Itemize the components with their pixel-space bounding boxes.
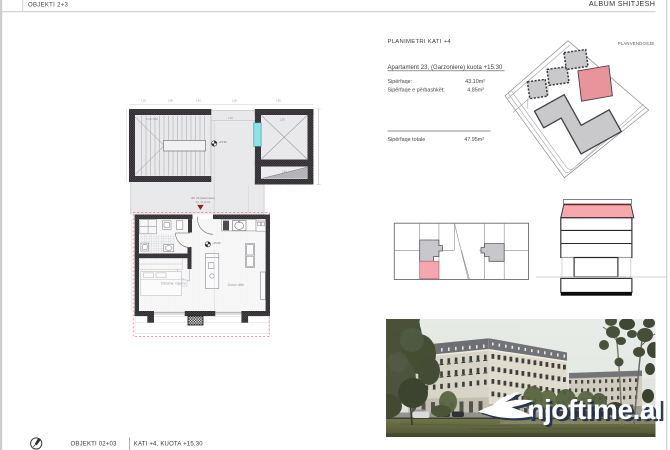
svg-text:AP. 23 (Garzoniere): AP. 23 (Garzoniere) — [191, 196, 215, 200]
svg-text:1.40: 1.40 — [228, 117, 233, 120]
svg-text:2.30: 2.30 — [232, 100, 237, 103]
svg-text:+15.30: +15.30 — [219, 140, 228, 144]
svg-text:17x17,6/28: 17x17,6/28 — [146, 118, 159, 121]
svg-text:47.95m²: 47.95m² — [464, 137, 484, 143]
svg-text:KATI +4, KUOTA +15.30: KATI +4, KUOTA +15.30 — [134, 442, 203, 448]
svg-text:Zona dite: Zona dite — [228, 282, 245, 287]
svg-text:Sip. 43.10 m2: Sip. 43.10 m2 — [196, 201, 211, 204]
svg-text:2.50: 2.50 — [276, 100, 281, 103]
svg-text:2.50: 2.50 — [282, 170, 287, 173]
svg-text:PLANVENDOSJE: PLANVENDOSJE — [618, 41, 655, 46]
svg-text:+15.30: +15.30 — [212, 241, 221, 245]
svg-text:njoftime.al: njoftime.al — [527, 394, 662, 425]
svg-text:OBJEKTI 2+3: OBJEKTI 2+3 — [28, 2, 69, 8]
svg-text:2.55: 2.55 — [168, 100, 173, 103]
svg-text:43.10m²: 43.10m² — [465, 79, 485, 85]
svg-text:1.20: 1.20 — [141, 100, 146, 103]
svg-text:2.55: 2.55 — [280, 119, 285, 122]
svg-text:4.85m²: 4.85m² — [467, 88, 484, 94]
svg-text:Dhome Gjumi: Dhome Gjumi — [161, 281, 186, 286]
svg-text:OBJEKTI 02+03: OBJEKTI 02+03 — [71, 442, 118, 448]
svg-text:1.42: 1.42 — [196, 100, 201, 103]
svg-text:PLANIMETRI KATI +4: PLANIMETRI KATI +4 — [388, 39, 452, 45]
svg-text:Sipërfaqe:: Sipërfaqe: — [388, 79, 413, 85]
svg-text:Sipërfaqe totale: Sipërfaqe totale — [388, 137, 426, 143]
svg-text:Apartament 23, (Garzoniere) ku: Apartament 23, (Garzoniere) kuota +15.30 — [388, 65, 504, 71]
svg-text:Sipërfaqe e përbashkët:: Sipërfaqe e përbashkët: — [388, 88, 445, 94]
svg-text:ALBUM SHITJESH: ALBUM SHITJESH — [589, 0, 655, 8]
